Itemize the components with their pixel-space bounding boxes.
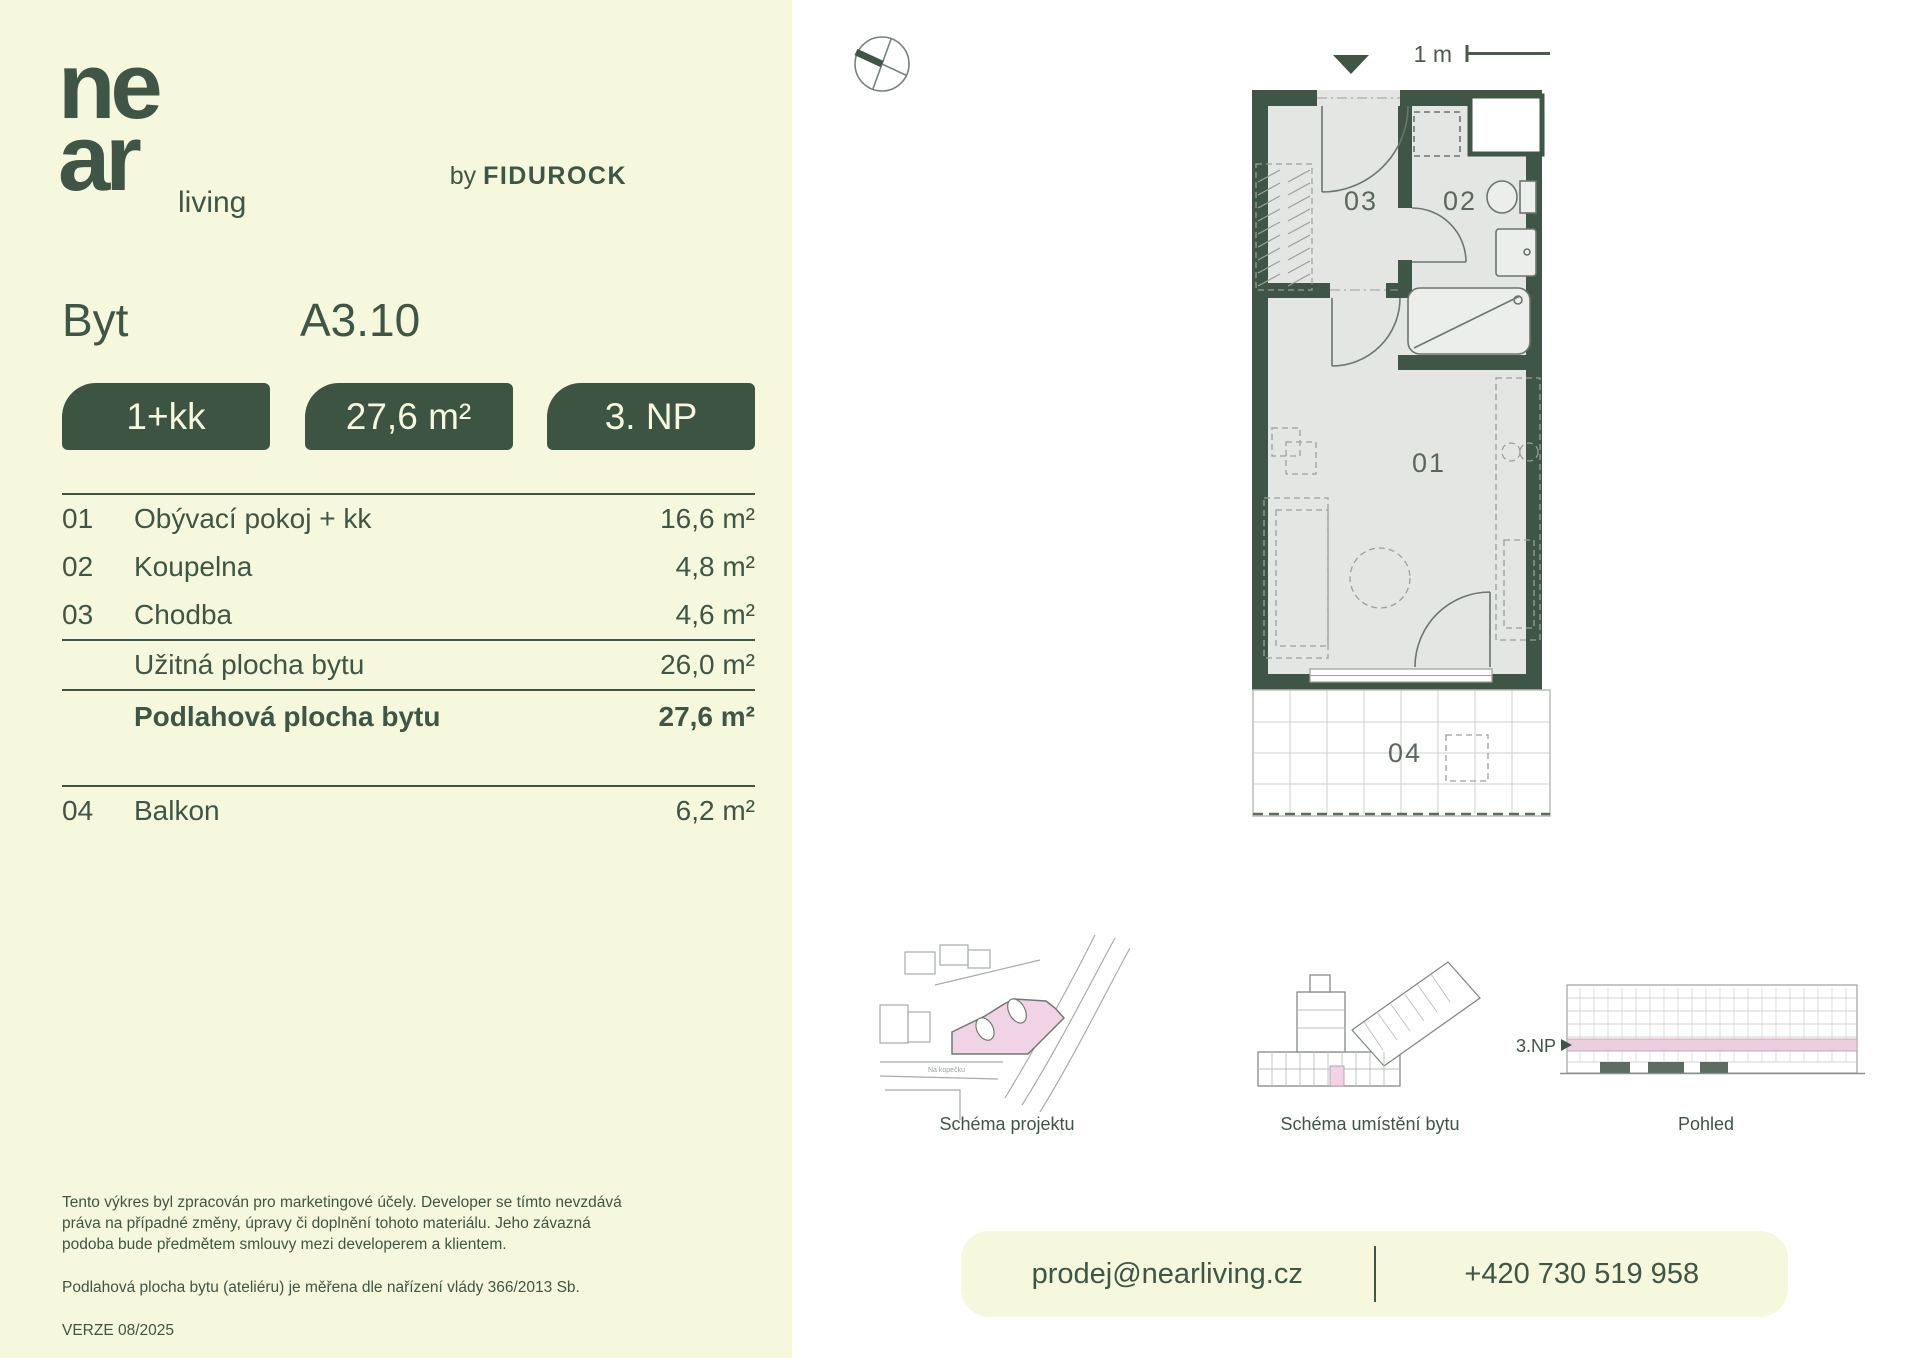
elevation-caption: Pohled: [1678, 1114, 1734, 1134]
toilet-tank: [1520, 181, 1536, 213]
floor-plan-graphics: 1 m: [0, 0, 1920, 1358]
site-plan-schematic: Na kopečku Schéma projektu: [880, 935, 1130, 1134]
unit-location-schematic: Schéma umístění bytu: [1258, 962, 1480, 1134]
floor-plan: 01 02 03: [1252, 90, 1542, 690]
scale-bar: 1 m: [1414, 41, 1550, 67]
balcony: 04: [1253, 690, 1550, 816]
floor-indicator-label: 3.NP: [1516, 1036, 1556, 1056]
highlighted-floor-band: [1567, 1039, 1857, 1051]
street-label: Na kopečku: [928, 1067, 965, 1074]
room-label-03: 03: [1344, 186, 1378, 216]
room-label-02: 02: [1443, 186, 1477, 216]
compass-icon: [855, 37, 909, 91]
contact-email[interactable]: prodej@nearliving.cz: [961, 1258, 1374, 1291]
entry-arrow-icon: [1333, 55, 1369, 74]
contact-phone[interactable]: +420 730 519 958: [1376, 1258, 1789, 1291]
room-label-04: 04: [1388, 738, 1422, 768]
room-label-01: 01: [1412, 448, 1446, 478]
toilet: [1487, 181, 1517, 213]
unit-location-caption: Schéma umístění bytu: [1280, 1114, 1459, 1134]
shaft: [1470, 96, 1542, 154]
site-plan-caption: Schéma projektu: [939, 1114, 1074, 1134]
contact-bar: prodej@nearliving.cz +420 730 519 958: [961, 1231, 1788, 1317]
scale-label: 1 m: [1414, 41, 1452, 67]
highlighted-unit: [1330, 1066, 1344, 1086]
elevation-schematic: 3.NP Pohled: [1516, 985, 1865, 1134]
